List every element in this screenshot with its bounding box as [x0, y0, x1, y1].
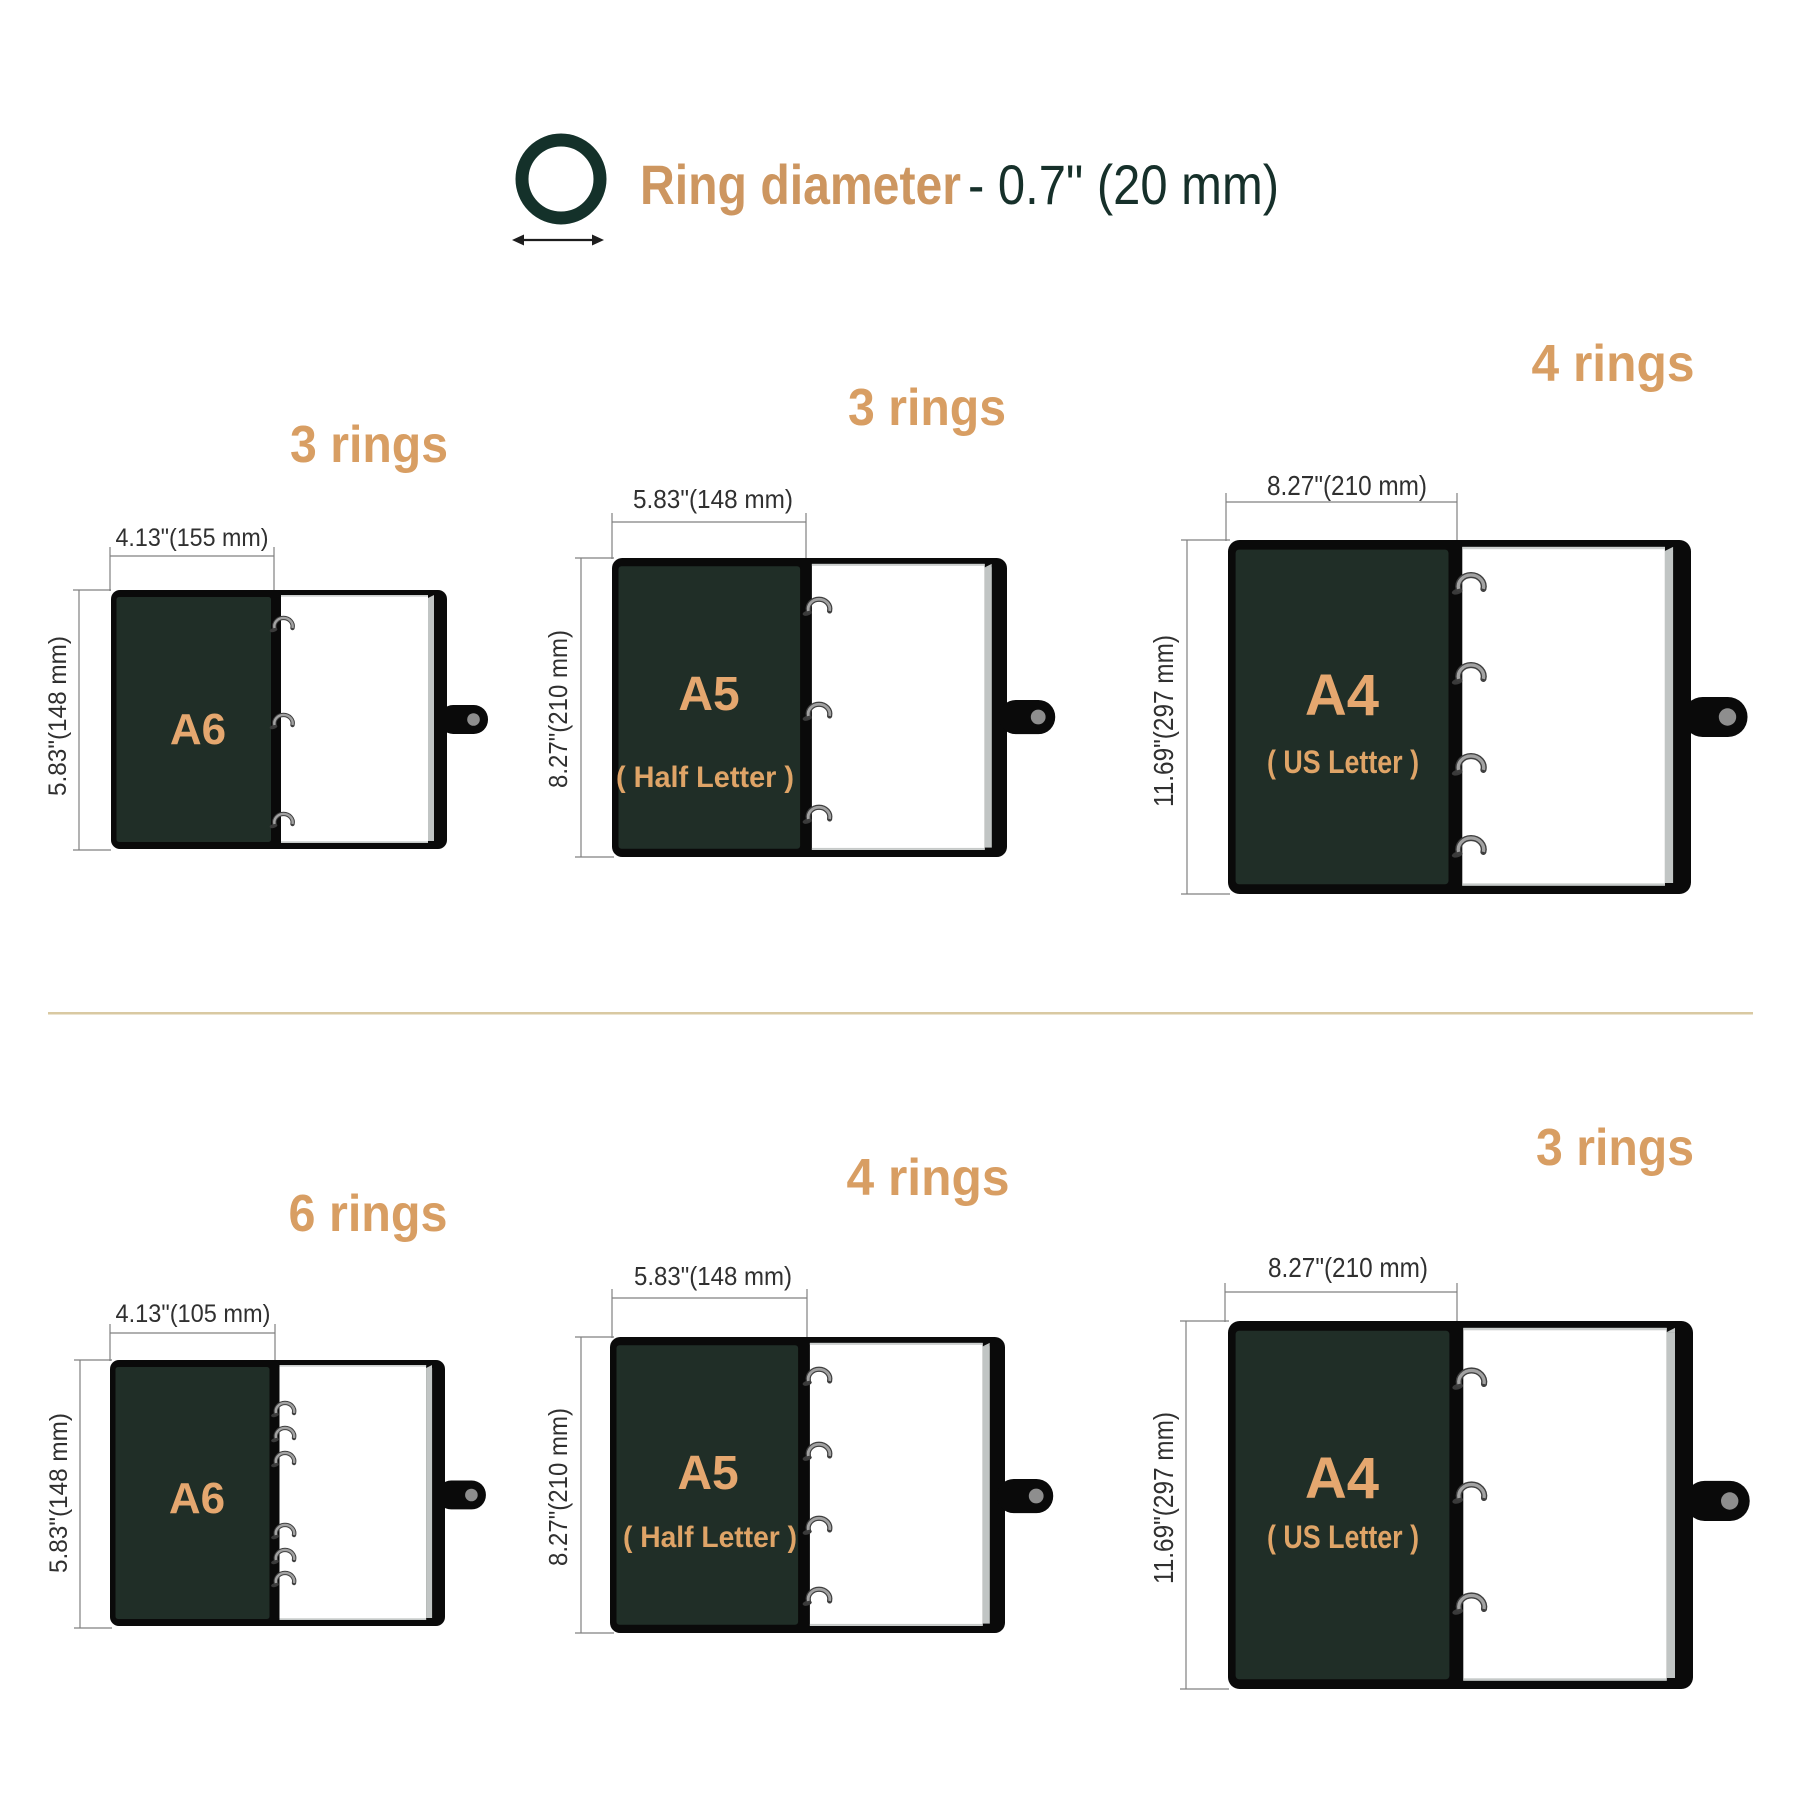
- svg-text:A4: A4: [1305, 663, 1379, 728]
- svg-text:5.83"(148 mm): 5.83"(148 mm): [44, 636, 72, 796]
- svg-text:8.27"(210 mm): 8.27"(210 mm): [543, 1408, 573, 1566]
- svg-text:8.27"(210 mm): 8.27"(210 mm): [1268, 1252, 1428, 1283]
- svg-text:A6: A6: [170, 705, 226, 754]
- svg-text:3 rings: 3 rings: [1536, 1119, 1694, 1177]
- svg-text:( Half Letter ): ( Half Letter ): [616, 761, 794, 794]
- svg-text:4.13"(155 mm): 4.13"(155 mm): [116, 524, 269, 552]
- svg-text:8.27"(210 mm): 8.27"(210 mm): [1267, 470, 1427, 501]
- svg-text:11.69"(297 mm): 11.69"(297 mm): [1148, 635, 1179, 807]
- svg-text:5.83"(148 mm): 5.83"(148 mm): [634, 1261, 792, 1291]
- svg-text:8.27"(210 mm): 8.27"(210 mm): [543, 630, 573, 788]
- svg-text:4 rings: 4 rings: [847, 1149, 1010, 1207]
- svg-text:( Half Letter ): ( Half Letter ): [623, 1521, 797, 1554]
- svg-text:( US Letter ): ( US Letter ): [1267, 744, 1419, 780]
- svg-text:- 0.7" (20 mm): - 0.7" (20 mm): [968, 153, 1279, 216]
- svg-text:3 rings: 3 rings: [848, 379, 1006, 437]
- svg-text:Ring diameter: Ring diameter: [640, 153, 961, 216]
- svg-text:6 rings: 6 rings: [289, 1185, 448, 1243]
- svg-text:A5: A5: [678, 668, 739, 721]
- svg-text:A6: A6: [169, 1474, 225, 1523]
- svg-text:4.13"(105 mm): 4.13"(105 mm): [116, 1300, 271, 1328]
- svg-text:5.83"(148 mm): 5.83"(148 mm): [45, 1413, 73, 1573]
- svg-text:4 rings: 4 rings: [1532, 335, 1695, 393]
- svg-text:A4: A4: [1305, 1446, 1379, 1511]
- svg-text:A5: A5: [677, 1447, 738, 1500]
- svg-text:3 rings: 3 rings: [290, 416, 448, 474]
- svg-text:( US Letter ): ( US Letter ): [1267, 1519, 1419, 1555]
- svg-text:5.83"(148 mm): 5.83"(148 mm): [633, 484, 793, 514]
- svg-text:11.69"(297 mm): 11.69"(297 mm): [1148, 1412, 1179, 1584]
